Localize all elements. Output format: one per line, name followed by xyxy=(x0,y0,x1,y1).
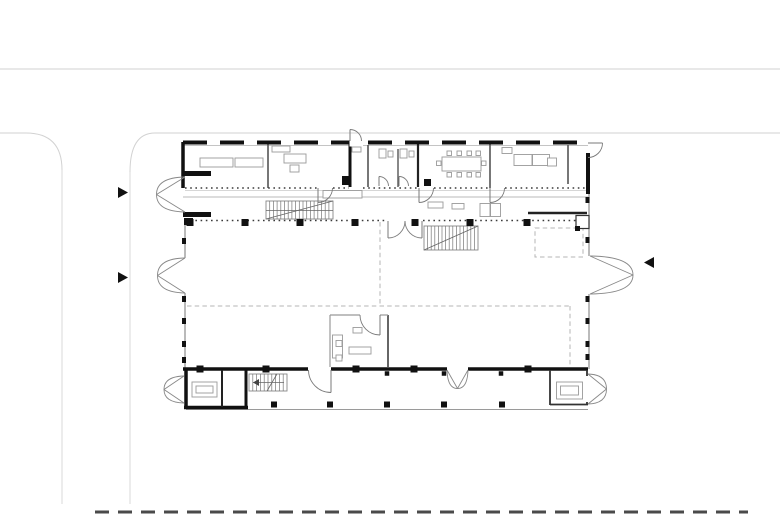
door-northeast-exterior-swing xyxy=(588,143,603,158)
column-gallery_row xyxy=(524,219,531,226)
chair xyxy=(476,151,481,156)
column-sub_ticks xyxy=(499,371,504,376)
column-south_wall_row xyxy=(411,366,418,373)
bench xyxy=(452,204,464,210)
column-porch_row xyxy=(441,402,447,408)
column-gallery_row xyxy=(412,219,419,226)
door-br-room xyxy=(588,374,607,389)
reception-desk xyxy=(480,204,490,217)
door-west-upper xyxy=(157,195,186,213)
column-south_wall_row xyxy=(263,366,270,373)
cabinet xyxy=(353,328,362,334)
door-br-room xyxy=(588,389,607,404)
shelf xyxy=(272,146,290,152)
door-wc-1-swing xyxy=(379,177,389,187)
facade-tick-right xyxy=(586,318,590,324)
shaft-corner xyxy=(575,226,580,231)
column-gallery_row xyxy=(467,219,474,226)
entrance-arrow-right xyxy=(644,257,654,268)
facade-tick-left xyxy=(182,341,186,347)
facade-tick-left xyxy=(182,357,186,363)
column-solid xyxy=(424,179,431,186)
chair xyxy=(336,355,342,361)
floor-plan-drawing xyxy=(0,0,780,515)
facade-tick-right xyxy=(586,341,590,347)
door-west-lower xyxy=(158,258,186,276)
chair xyxy=(467,151,472,156)
road-fillet-right xyxy=(130,133,155,172)
chair xyxy=(447,151,452,156)
facade-tick-left xyxy=(182,238,186,244)
facade-tick-right xyxy=(586,296,590,302)
chair xyxy=(437,161,442,166)
facade-tick-right xyxy=(586,354,590,360)
door-porch-double xyxy=(447,370,458,389)
wc-fixture xyxy=(379,149,386,158)
table xyxy=(200,158,233,167)
column-solid xyxy=(184,218,193,225)
chair xyxy=(476,173,481,178)
column-sub_ticks xyxy=(442,371,447,376)
facade-tick-left xyxy=(182,296,186,302)
stair-hall-line xyxy=(424,226,478,250)
shelf xyxy=(502,148,512,154)
chair xyxy=(467,173,472,178)
door-hall-office-swing xyxy=(360,315,380,335)
door-porch-double xyxy=(458,370,469,389)
desk xyxy=(284,154,306,163)
chair xyxy=(290,165,299,172)
column-gallery_row xyxy=(297,219,304,226)
bench xyxy=(428,202,443,208)
table-inner xyxy=(561,386,579,395)
wc-fixture xyxy=(400,149,407,158)
entrance-arrow-left-upper xyxy=(118,187,128,198)
entrance-arrow-left-lower xyxy=(118,272,128,283)
column-gallery_row xyxy=(242,219,249,226)
door-west-upper xyxy=(157,177,186,195)
column-porch_row xyxy=(271,402,277,408)
chair xyxy=(336,341,342,347)
column-sub_ticks xyxy=(385,371,390,376)
bench xyxy=(323,191,362,199)
office-desk xyxy=(349,347,371,354)
fixture xyxy=(352,147,361,152)
door-bl-room xyxy=(164,390,184,404)
column-gallery_row xyxy=(352,219,359,226)
column-porch_row xyxy=(384,402,390,408)
facade-tick-right xyxy=(586,197,590,203)
meeting-table xyxy=(442,157,481,171)
column-south_wall_row xyxy=(525,366,532,373)
stair-small-south-arrow xyxy=(253,379,259,386)
facade-tick-left xyxy=(182,318,186,324)
door-porch-single-swing xyxy=(309,370,332,393)
floor-plan-canvas xyxy=(0,0,780,515)
table xyxy=(235,158,263,167)
door-east-main xyxy=(590,275,633,294)
chair xyxy=(482,161,487,166)
road-fillet-left xyxy=(26,133,62,170)
wc-fixture xyxy=(388,151,393,157)
side-table xyxy=(548,158,557,166)
column-south_wall_row xyxy=(353,366,360,373)
door-east-main xyxy=(590,256,633,275)
sofa xyxy=(514,155,532,166)
wc-fixture xyxy=(409,151,414,157)
door-gallery-hall-left-swing xyxy=(388,221,405,238)
facade-tick-right xyxy=(586,237,590,243)
column-south_wall_row xyxy=(197,366,204,373)
column-porch_row xyxy=(499,402,505,408)
door-wc-2-swing xyxy=(399,177,409,187)
table-inner xyxy=(196,386,213,393)
reception-desk xyxy=(491,204,501,217)
chair xyxy=(457,173,462,178)
void-guide-rect xyxy=(535,228,583,257)
door-west-lower xyxy=(158,276,186,294)
column-porch_row xyxy=(327,402,333,408)
door-bl-room xyxy=(164,376,184,390)
chair xyxy=(447,173,452,178)
shaft-solid xyxy=(342,176,351,185)
chair xyxy=(457,151,462,156)
sofa xyxy=(533,155,550,166)
